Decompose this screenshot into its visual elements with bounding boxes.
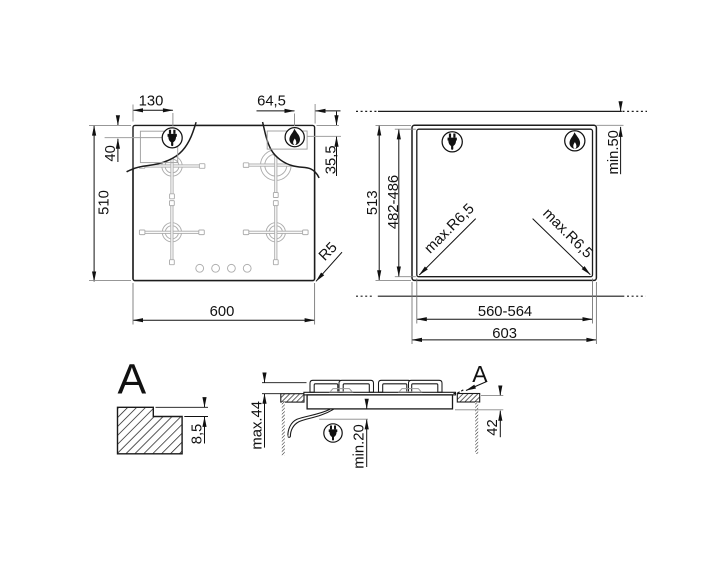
svg-text:35,5: 35,5 <box>324 145 340 174</box>
svg-text:482-486: 482-486 <box>386 175 402 229</box>
svg-text:8,5: 8,5 <box>190 424 206 445</box>
svg-text:min.20: min.20 <box>351 424 367 468</box>
svg-text:130: 130 <box>139 93 164 109</box>
svg-text:513: 513 <box>365 190 381 215</box>
svg-text:560-564: 560-564 <box>478 304 532 320</box>
svg-text:max.44: max.44 <box>250 401 266 450</box>
svg-text:A: A <box>472 361 488 387</box>
svg-text:A: A <box>118 356 147 404</box>
svg-text:64,5: 64,5 <box>257 94 286 110</box>
svg-text:603: 603 <box>492 326 517 342</box>
svg-text:min.50: min.50 <box>606 130 622 174</box>
svg-text:510: 510 <box>96 190 112 215</box>
svg-text:600: 600 <box>210 304 235 320</box>
svg-text:42: 42 <box>485 419 501 435</box>
svg-text:40: 40 <box>103 145 119 161</box>
